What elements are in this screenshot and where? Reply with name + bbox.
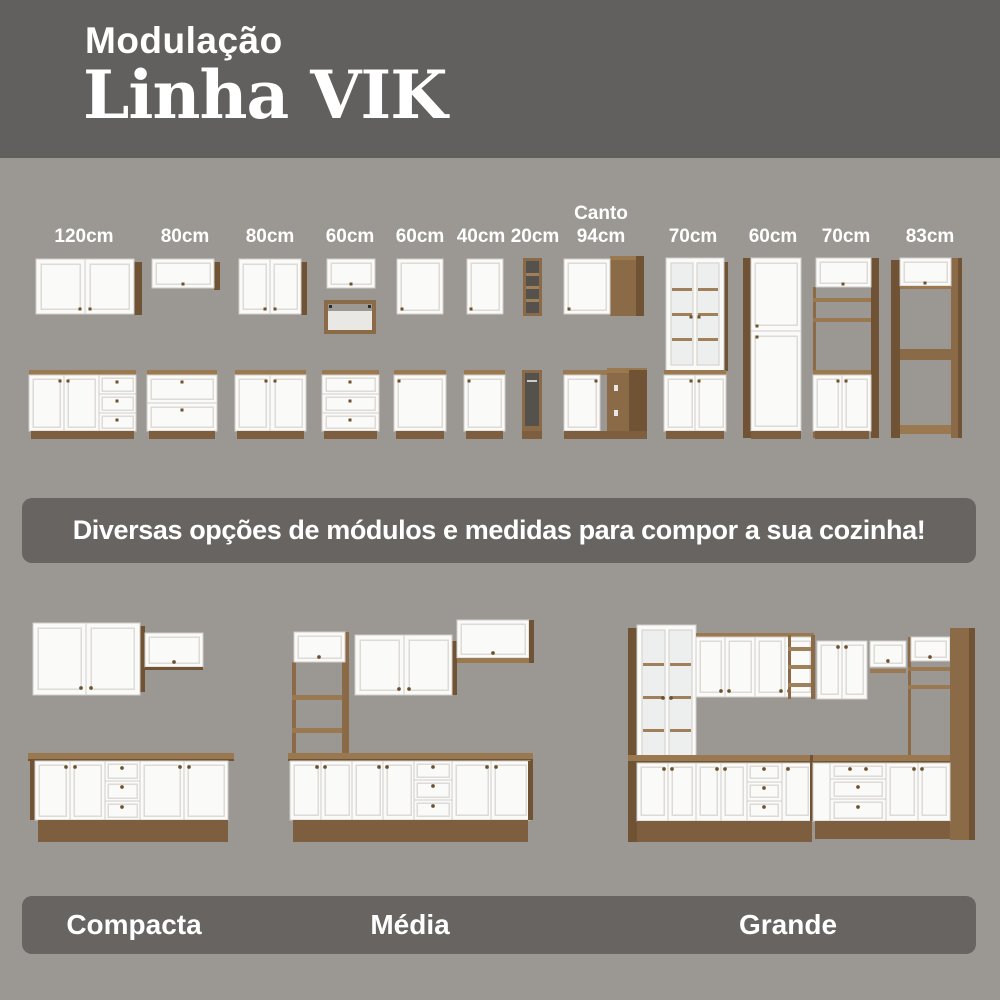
header-banner: Modulação Linha VIK [0, 0, 1000, 158]
module-80cm-a-illustration [147, 259, 220, 439]
module-60cm-a-illustration [322, 259, 379, 439]
kitchen-name-media: Média [370, 896, 449, 954]
kitchen-compacta-illustration [28, 623, 234, 842]
kitchen-name-grande: Grande [739, 896, 837, 954]
modules-section: 120cm 80cm 80cm 60cm 60cm 40cm 20cm Cant… [0, 200, 1000, 460]
promo-image: Modulação Linha VIK 120cm 80cm 80cm 60cm… [0, 0, 1000, 1000]
page-title: Linha VIK [83, 56, 447, 134]
module-120cm-illustration [29, 259, 142, 439]
kitchens-illustration [0, 595, 1000, 885]
modules-illustration [0, 210, 1000, 460]
module-20cm-illustration [522, 258, 542, 439]
module-40cm-illustration [464, 259, 505, 439]
kitchens-section [0, 595, 1000, 885]
module-80cm-b-illustration [235, 259, 307, 439]
module-canto-94cm-illustration [563, 256, 647, 439]
module-70cm-b-illustration [813, 258, 879, 439]
tagline-banner: Diversas opções de módulos e medidas par… [22, 498, 976, 563]
module-70cm-a-illustration [664, 258, 728, 439]
module-60cm-b-illustration [394, 259, 446, 439]
kitchen-grande-illustration [628, 625, 975, 842]
kitchen-media-illustration [288, 620, 534, 842]
kitchen-name-compacta: Compacta [66, 896, 201, 954]
module-60cm-c-illustration [743, 258, 801, 439]
module-83cm-illustration [891, 258, 962, 438]
tagline-text: Diversas opções de módulos e medidas par… [73, 515, 926, 546]
kitchen-sizes-banner: Compacta Média Grande [22, 896, 976, 954]
